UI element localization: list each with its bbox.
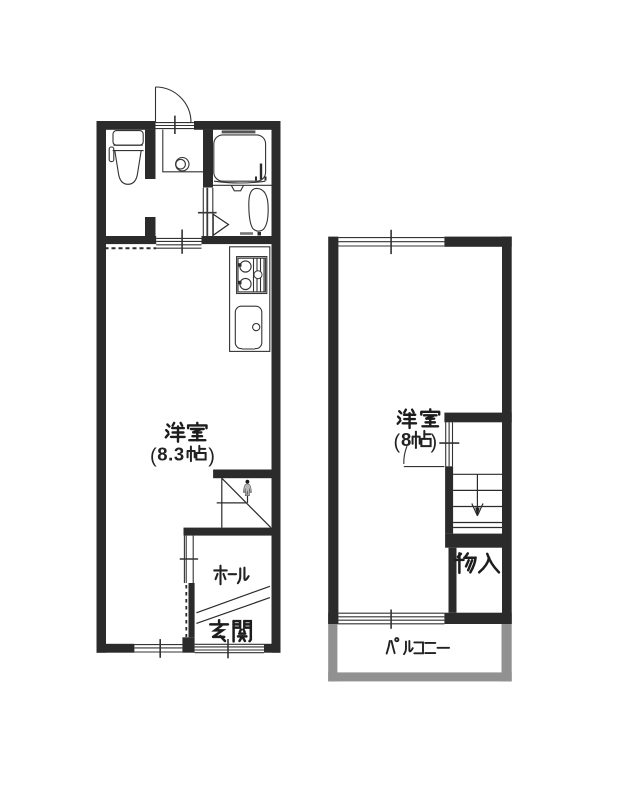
svg-text:): ) [431,432,438,454]
svg-text:8.3: 8.3 [157,444,185,465]
svg-text:): ) [208,446,215,468]
svg-text:(: ( [150,446,157,468]
svg-text:(: ( [394,432,401,454]
